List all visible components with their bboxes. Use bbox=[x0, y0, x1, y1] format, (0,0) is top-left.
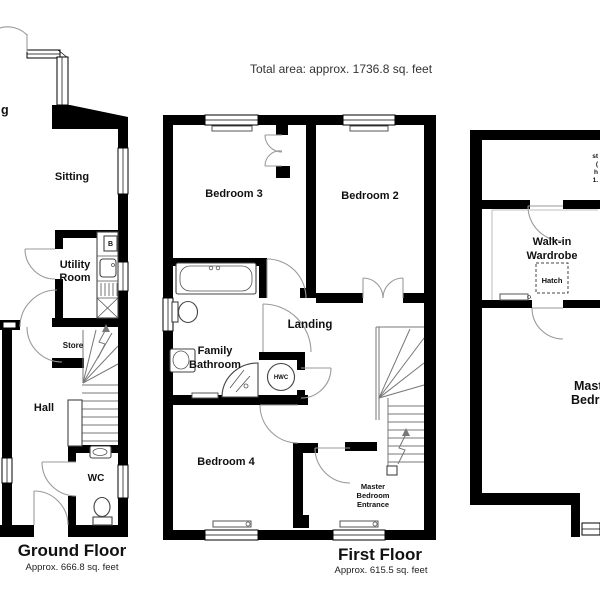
total-area-text: Total area: approx. 1736.8 sq. feet bbox=[250, 62, 433, 76]
attic-note-line4: 1. bbox=[593, 177, 599, 184]
bathroom-toilet bbox=[172, 302, 178, 322]
utility-sink bbox=[100, 259, 116, 277]
second-floor-walls bbox=[470, 130, 600, 537]
bedroom4-label: Bedroom 4 bbox=[197, 456, 255, 468]
stair-rail bbox=[68, 400, 82, 446]
attic-note-line1: st bbox=[592, 153, 599, 160]
family-bathroom-label-line1: Family bbox=[198, 345, 234, 357]
walk-in-wardrobe-label-line1: Walk-in bbox=[533, 236, 572, 248]
attic-note-line3: h bbox=[594, 169, 598, 176]
bedroom2-label: Bedroom 2 bbox=[341, 190, 398, 202]
hall-label: Hall bbox=[34, 402, 54, 414]
landing-label: Landing bbox=[288, 319, 333, 331]
first-floor-area: Approx. 615.5 sq. feet bbox=[335, 565, 428, 576]
utility-room-label-line2: Room bbox=[59, 272, 90, 284]
bedroom3-label: Bedroom 3 bbox=[205, 188, 262, 200]
cutoff-room-label: g bbox=[1, 103, 9, 117]
ground-floor-walls bbox=[0, 105, 128, 537]
attic-note-line2: ( bbox=[596, 161, 599, 168]
first-floor-stairs bbox=[376, 327, 424, 475]
wc-fixtures bbox=[90, 446, 112, 525]
towel-rail bbox=[192, 393, 218, 398]
master-bedroom-label-line2: Bedroom bbox=[571, 393, 600, 407]
wc-toilet bbox=[94, 498, 110, 517]
master-entrance-label-line3: Entrance bbox=[357, 500, 389, 509]
store-label: Store bbox=[63, 341, 84, 350]
first-floor-doors bbox=[260, 135, 403, 483]
sitting-room-label: Sitting bbox=[55, 171, 89, 183]
master-entrance-label-line1: Master bbox=[361, 482, 385, 491]
ground-floor-area: Approx. 666.8 sq. feet bbox=[26, 562, 119, 573]
wc-label: WC bbox=[88, 473, 105, 484]
first-floor-windows bbox=[163, 115, 395, 540]
second-floor-windows bbox=[582, 523, 600, 535]
utility-room-label-line1: Utility bbox=[60, 259, 91, 271]
floorplan-drawing: Total area: approx. 1736.8 sq. feet bbox=[0, 0, 600, 600]
master-bedroom-label-line1: Master bbox=[574, 379, 600, 393]
second-floor-doors bbox=[528, 206, 563, 339]
family-bathroom-label-line2: Bathroom bbox=[189, 359, 241, 371]
first-floor-plan: Bedroom 3 Bedroom 2 Family Bathroom Land… bbox=[163, 115, 436, 576]
second-floor-plan: st ( h 1. Walk-in Wardrobe Hatch Master … bbox=[470, 130, 600, 537]
hatch-label: Hatch bbox=[542, 276, 563, 285]
ground-floor-plan: g Sitting Utility Room B Store Hall WC G… bbox=[0, 27, 128, 573]
floorplan-page: Total area: approx. 1736.8 sq. feet bbox=[0, 0, 600, 600]
walk-in-wardrobe-label-line2: Wardrobe bbox=[527, 250, 578, 262]
first-floor-title: First Floor bbox=[338, 545, 422, 564]
hwc-label: HWC bbox=[274, 375, 289, 381]
boiler-label: B bbox=[108, 241, 113, 248]
ground-floor-title: Ground Floor bbox=[18, 541, 127, 560]
master-entrance-label-line2: Bedroom bbox=[357, 491, 390, 500]
radiator bbox=[500, 294, 528, 300]
